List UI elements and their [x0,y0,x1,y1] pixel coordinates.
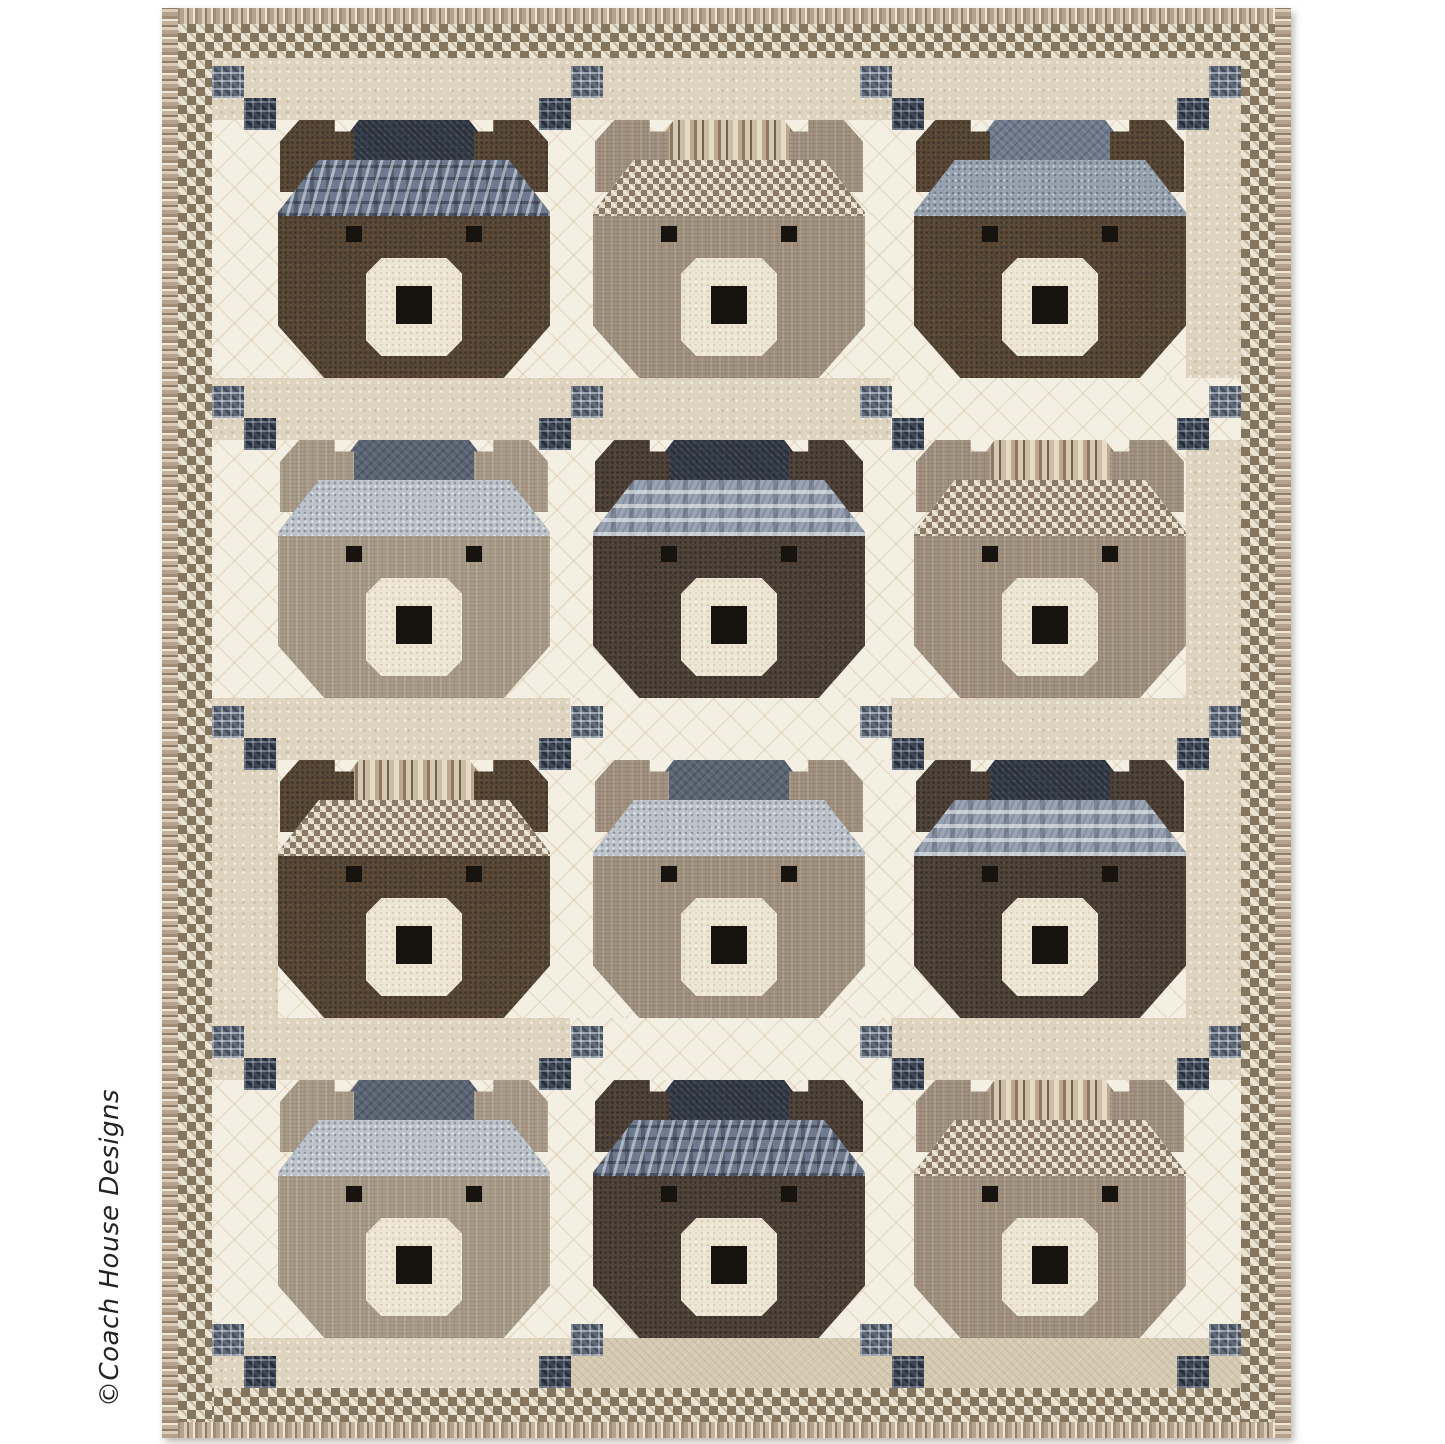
bear-nose [1032,286,1068,324]
bear-muzzle [681,898,777,996]
bear-block-r1-c3 [914,120,1186,378]
bear-nose [711,606,747,644]
sashing-strip-band2-col2 [570,698,891,760]
cornerstone-plaid-y4-x0 [212,1324,276,1388]
cornerstone-plaid-y0-x1 [539,66,603,130]
background-patch-left-row3 [212,760,278,1018]
bear-block-r4-c3 [914,1080,1186,1338]
cornerstone-plaid-y4-x2 [860,1324,924,1388]
cornerstone-square-a [1209,1324,1241,1356]
bear-eye-left [982,1186,998,1202]
bear-head [593,1120,865,1338]
bear-block-r4-c1 [278,1080,550,1338]
cornerstone-square-b [539,738,571,770]
cornerstone-plaid-y1-x3 [1177,386,1241,450]
cornerstone-square-a [1209,706,1241,738]
cornerstone-square-b [892,1058,924,1090]
bear-head [914,1120,1186,1338]
bear-muzzle [1002,578,1098,676]
cornerstone-square-a [571,706,603,738]
bear-head [278,800,550,1018]
bear-hat-band [593,1120,865,1176]
quilt-interior [212,58,1241,1388]
bear-nose [396,1246,432,1284]
cornerstone-square-a [571,1324,603,1356]
cornerstone-square-b [539,1058,571,1090]
cornerstone-square-a [571,66,603,98]
cornerstone-square-a [860,386,892,418]
bear-eye-left [982,866,998,882]
binding-bottom [162,1422,1291,1438]
bear-nose [711,926,747,964]
bear-eye-right [1102,546,1118,562]
bear-muzzle [366,578,462,676]
cornerstone-square-b [1177,738,1209,770]
bear-eye-left [661,546,677,562]
bear-hat-band [278,480,550,536]
cornerstone-square-b [1177,1356,1209,1388]
cornerstone-square-b [1177,1058,1209,1090]
cornerstone-square-b [892,1356,924,1388]
bear-eye-right [466,226,482,242]
cornerstone-square-a [860,1026,892,1058]
bear-hat-band [914,1120,1186,1176]
bear-eye-left [346,546,362,562]
cornerstone-square-b [1177,98,1209,130]
bear-muzzle [366,258,462,356]
cornerstone-square-a [212,1026,244,1058]
bear-nose [396,926,432,964]
bear-block-r1-c2 [593,120,865,378]
background-patch-right-row3 [1186,760,1241,1018]
bear-eye-right [1102,866,1118,882]
cornerstone-square-a [1209,1026,1241,1058]
bear-hat-band [914,800,1186,856]
cornerstone-square-a [860,706,892,738]
bear-eye-right [466,1186,482,1202]
binding-right [1275,8,1291,1438]
bear-eye-left [661,226,677,242]
houndstooth-border-right [1241,24,1275,1422]
bear-nose [1032,1246,1068,1284]
cornerstone-square-a [1209,386,1241,418]
cornerstone-plaid-y0-x2 [860,66,924,130]
bear-eye-left [346,866,362,882]
cornerstone-square-a [860,1324,892,1356]
bear-head [278,480,550,698]
cornerstone-square-b [244,418,276,450]
quilt-image [162,8,1291,1438]
bear-eye-left [982,226,998,242]
bear-muzzle [366,898,462,996]
bear-nose [396,606,432,644]
bear-block-r3-c1 [278,760,550,1018]
bear-hat-band [593,160,865,216]
bear-eye-left [982,546,998,562]
background-patch-right-row1 [1186,120,1241,378]
cornerstone-square-b [539,1356,571,1388]
cornerstone-plaid-y1-x0 [212,386,276,450]
bear-block-r2-c1 [278,440,550,698]
bear-muzzle [681,578,777,676]
bear-muzzle [1002,1218,1098,1316]
bear-hat-band [278,800,550,856]
bear-muzzle [681,258,777,356]
cornerstone-square-b [244,98,276,130]
bear-block-r3-c2 [593,760,865,1018]
bear-eye-right [1102,1186,1118,1202]
cornerstone-square-b [244,738,276,770]
cornerstone-plaid-y3-x0 [212,1026,276,1090]
page-background: ©Coach House Designs [0,0,1445,1444]
cornerstone-plaid-y4-x1 [539,1324,603,1388]
cornerstone-square-b [892,418,924,450]
cornerstone-square-b [539,98,571,130]
cornerstone-plaid-y0-x3 [1177,66,1241,130]
bear-eye-left [346,1186,362,1202]
bear-block-r1-c1 [278,120,550,378]
bear-eye-right [781,1186,797,1202]
bear-hat-band [593,480,865,536]
cornerstone-plaid-y2-x2 [860,706,924,770]
cornerstone-square-b [892,738,924,770]
sashing-strip-band4-col2 [570,1338,891,1388]
cornerstone-square-b [892,98,924,130]
bear-hat-band [278,160,550,216]
bear-hat-band [914,160,1186,216]
bear-eye-left [661,866,677,882]
houndstooth-border-left [178,24,212,1422]
bear-head [593,800,865,1018]
sashing-strip-band3-col2 [570,1018,891,1080]
bear-head [593,160,865,378]
bear-eye-right [781,866,797,882]
bear-nose [1032,926,1068,964]
background-patch-right-row2 [1186,440,1241,698]
bear-muzzle [681,1218,777,1316]
cornerstone-plaid-y3-x1 [539,1026,603,1090]
houndstooth-border-bottom [178,1388,1275,1422]
cornerstone-square-a [212,706,244,738]
cornerstone-plaid-y1-x2 [860,386,924,450]
bear-hat-band [593,800,865,856]
bear-eye-left [661,1186,677,1202]
bear-eye-right [1102,226,1118,242]
cornerstone-square-a [212,1324,244,1356]
sashing-strip-band0-col2 [570,58,891,120]
sashing-strip-band1-col2 [570,378,891,440]
cornerstone-square-a [571,1026,603,1058]
cornerstone-square-a [860,66,892,98]
bear-eye-right [466,866,482,882]
cornerstone-plaid-y3-x2 [860,1026,924,1090]
houndstooth-border-top [178,24,1275,58]
binding-left [162,8,178,1438]
bear-muzzle [1002,898,1098,996]
cornerstone-plaid-y1-x1 [539,386,603,450]
bear-head [278,160,550,378]
bear-eye-left [346,226,362,242]
cornerstone-plaid-y3-x3 [1177,1026,1241,1090]
bear-block-r4-c2 [593,1080,865,1338]
cornerstone-square-a [212,66,244,98]
bear-muzzle [1002,258,1098,356]
bear-block-r2-c3 [914,440,1186,698]
bear-nose [396,286,432,324]
cornerstone-square-b [1177,418,1209,450]
bear-head [278,1120,550,1338]
cornerstone-plaid-y2-x1 [539,706,603,770]
cornerstone-square-a [1209,66,1241,98]
cornerstone-plaid-y4-x3 [1177,1324,1241,1388]
cornerstone-square-b [244,1058,276,1090]
bear-muzzle [366,1218,462,1316]
bear-head [914,480,1186,698]
bear-nose [711,1246,747,1284]
cornerstone-plaid-y0-x0 [212,66,276,130]
bear-head [914,160,1186,378]
bear-block-r2-c2 [593,440,865,698]
binding-top [162,8,1291,24]
cornerstone-square-b [539,418,571,450]
cornerstone-square-b [244,1356,276,1388]
bear-block-r3-c3 [914,760,1186,1018]
bear-eye-right [466,546,482,562]
cornerstone-plaid-y2-x3 [1177,706,1241,770]
credit-text: ©Coach House Designs [97,1089,123,1407]
bear-eye-right [781,546,797,562]
cornerstone-plaid-y2-x0 [212,706,276,770]
cornerstone-square-a [571,386,603,418]
bear-head [914,800,1186,1018]
cornerstone-square-a [212,386,244,418]
bear-nose [1032,606,1068,644]
bear-eye-right [781,226,797,242]
bear-hat-band [914,480,1186,536]
bear-hat-band [278,1120,550,1176]
bear-head [593,480,865,698]
bear-nose [711,286,747,324]
